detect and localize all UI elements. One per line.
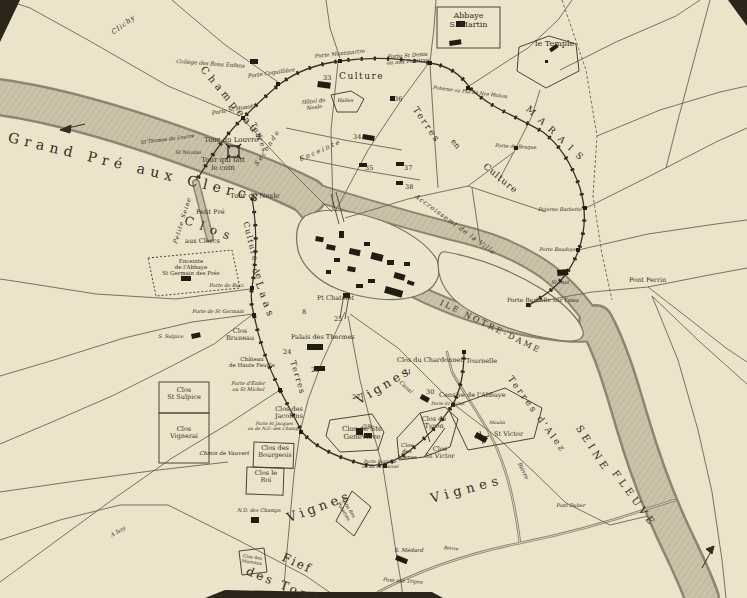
plot-number-31: 31 [403,368,411,376]
plot-number-27: 27 [352,393,360,401]
label-aux-clercs: aux Clercs [185,238,220,245]
st-sulpice-building [191,332,201,339]
label-porte-denfer: Porte d'Enfer ou St Michel [226,381,270,392]
label-porte-st-victor: Porte St Victor [431,401,465,406]
label-clos-bruneau: Clos Bruneau [224,328,256,343]
historic-paris-map: Clichy Collège des Bons Enfans Champeaux… [0,0,747,598]
label-tour-de-nesle: Tour de Nesle [230,193,280,201]
label-clos-des-jacobins: Clos des Jacobins [272,406,306,421]
label-abbaye-s-martin: Abbaye S. Martin [437,12,500,30]
label-clos-st-victor: Clos St Victor [422,446,458,461]
seine-river [0,96,702,598]
label-s-medard: S. Médard [394,547,423,553]
label-censive-abbaye: Censive de l'Abbaye [439,392,505,399]
label-clos-le-roi: Clos le Roi [252,470,280,485]
label-tournelle: Tournelle [466,358,497,365]
label-porte-bordelle: Porte Bordelle ou de St Marcel [358,459,402,469]
label-moulin: Moulin [489,420,505,425]
abbey-building [181,276,191,281]
plot-number-34: 34 [353,133,361,141]
label-chemin-de-vauvert: Chmin de Vauvert [199,450,249,456]
plot-number-37: 37 [404,164,412,172]
palais-des-thermes-building [307,344,323,350]
label-tour-qui-fait-le-coin: Tour qui fait le coin [198,157,248,173]
label-clos-des-arenes: Clos des Arènes [394,442,420,460]
label-poterne-barbette: Poterne Barbette [538,207,581,213]
label-clos-st-sulpice: Clos St Sulpice [160,387,208,402]
plot-number-38: 38 [405,183,413,191]
plot-number-24: 24 [283,348,291,356]
label-petit-chatelet: Pt Chatelet [317,295,354,302]
label-le-temple: le Temple [535,40,574,49]
label-clos-ste-genevieve: Clos de Ste Geneviève [334,426,390,442]
label-clos-des-bourgeois: Clos des Bourgeois [257,445,293,460]
label-porte-baudoyer: Porte Baudoyer [539,247,578,253]
label-pont-duber: Pont Duber [556,503,585,509]
label-moulin-st-victor: St Victor [494,431,523,438]
label-porte-de-st-germain: Porte de St Germain [192,309,244,315]
plot-number-26: 26 [311,366,319,374]
st-medard-building [395,555,408,564]
label-clos-du-chardonnet: Clos du Chardonnet [397,357,463,364]
label-palais-des-thermes: Palais des Thermes [291,334,355,341]
label-clos-de-tyron: Clos de Tyron [418,416,450,431]
nd-des-champs-building [251,517,259,523]
plot-number-35: 35 [365,164,373,172]
plot-number-25: 25 [334,315,342,323]
label-s-sulpice: S. Sulpice [158,334,183,340]
plot-number-36: 36 [394,95,402,103]
label-halles: Halles [337,98,353,104]
label-enceinte-abbaye: Enceinte de l'Abbaye St Germain des Prés [150,258,232,276]
label-st-nicolas: St Nicolas [175,150,201,156]
label-porte-de-buci: Porte de Buci [209,283,243,289]
label-petit-pre: Petit Pré [196,209,225,216]
plot-number-8: 8 [302,308,306,316]
label-nd-des-champs: N.D. des Champs [237,508,281,514]
label-clos-vignerai: Clos Vignerai [160,426,208,441]
label-porte-barbelle: Porte Barbelle sur l'eau [507,297,579,304]
label-st-paul: St Paul [551,280,569,286]
label-tour-du-louvre: Tour du Louvre [204,137,258,145]
plot-number-30: 30 [426,388,434,396]
plot-number-33: 33 [323,74,331,82]
label-chateau-hautefeuille: Château de Haute Feuille [228,356,276,368]
label-culture-right-bank: Culture [339,71,384,81]
label-pont-perrin: Pont Perrin [629,277,666,284]
plot-number-28: 28 [363,423,371,431]
st-paul-building [557,269,568,276]
label-porte-st-jacques: Porte St Jacques ou de N.D. des Champs [243,421,305,431]
